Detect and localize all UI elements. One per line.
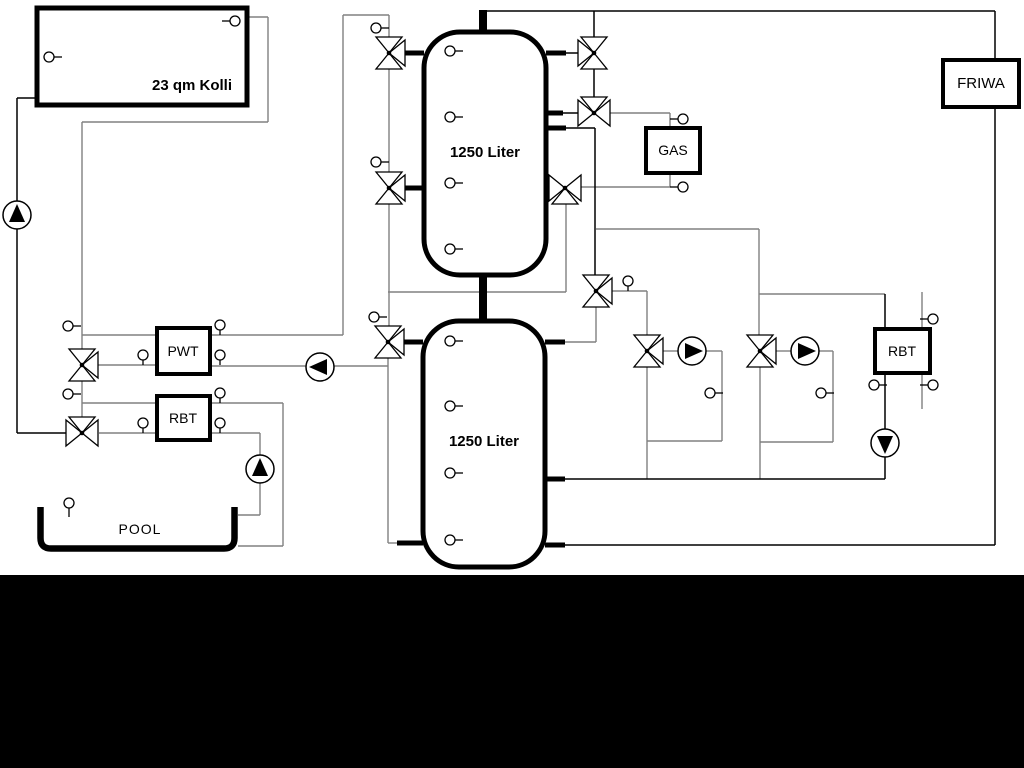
pool-label: POOL [119,521,162,537]
rbt-right-label: RBT [888,343,916,359]
hydraulic-schematic-page: 23 qm Kolli 1250 Liter 1250 Liter PWT RB… [0,0,1024,768]
bottom-black-band [0,575,1024,768]
pump-rbt-right-icon [871,429,899,457]
tank2-label: 1250 Liter [449,433,519,450]
rbt-left-label: RBT [169,410,197,426]
friwa-label: FRIWA [957,75,1005,92]
pump-heating-circuit-2-icon [791,337,819,365]
gas-label: GAS [658,142,688,158]
pump-heating-circuit-1-icon [678,337,706,365]
collector-label: 23 qm Kolli [152,77,232,94]
tank1-label: 1250 Liter [450,144,520,161]
pump-solar-icon [3,201,31,229]
pump-pwt-secondary-icon [306,353,334,381]
pump-pool-icon [246,455,274,483]
pwt-label: PWT [167,343,199,359]
hydraulic-schematic: 23 qm Kolli 1250 Liter 1250 Liter PWT RB… [0,0,1024,768]
